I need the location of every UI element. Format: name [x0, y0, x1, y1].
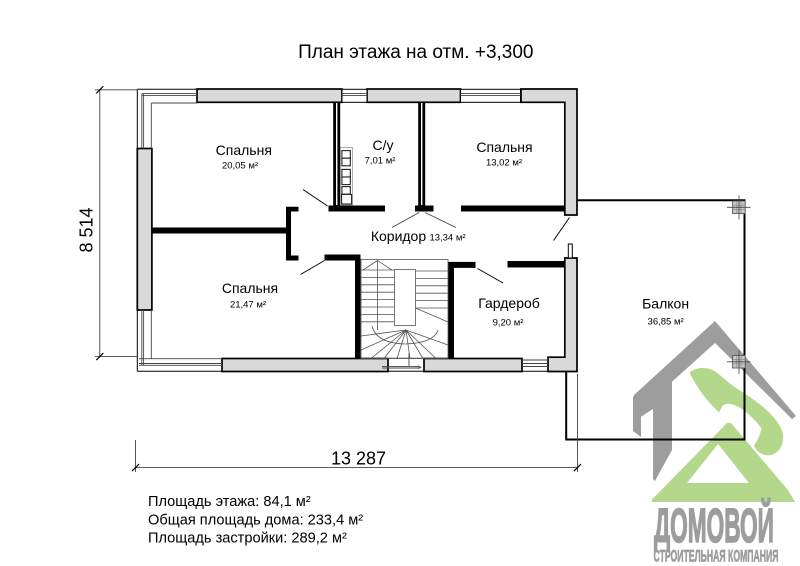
svg-text:Спальня: Спальня — [222, 280, 278, 296]
svg-text:Площадь застройки: 289,2 м²: Площадь застройки: 289,2 м² — [148, 531, 347, 547]
svg-text:Общая площадь дома: 233,4 м²: Общая площадь дома: 233,4 м² — [148, 513, 363, 529]
svg-text:Балкон: Балкон — [642, 296, 689, 312]
svg-text:9,20 м²: 9,20 м² — [493, 318, 524, 329]
svg-text:Спальня: Спальня — [476, 139, 532, 155]
svg-text:21,47 м²: 21,47 м² — [230, 300, 266, 311]
svg-text:ДОМОВОЙ: ДОМОВОЙ — [654, 499, 774, 553]
svg-text:Гардероб: Гардероб — [478, 295, 540, 311]
svg-text:Площадь этажа: 84,1 м²: Площадь этажа: 84,1 м² — [148, 494, 311, 510]
svg-text:Спальня: Спальня — [216, 142, 272, 158]
svg-text:36,85 м²: 36,85 м² — [648, 316, 684, 327]
svg-text:8 514: 8 514 — [77, 207, 97, 252]
svg-text:СТРОИТЕЛЬНАЯ КОМПАНИЯ: СТРОИТЕЛЬНАЯ КОМПАНИЯ — [654, 546, 779, 565]
svg-text:С/у: С/у — [373, 137, 394, 153]
svg-text:Коридор: Коридор — [371, 228, 427, 244]
svg-text:20,05 м²: 20,05 м² — [222, 161, 258, 172]
svg-text:13,02 м²: 13,02 м² — [486, 158, 522, 169]
svg-text:13,34 м²: 13,34 м² — [429, 233, 465, 244]
svg-text:7,01 м²: 7,01 м² — [365, 156, 396, 167]
svg-text:13 287: 13 287 — [331, 449, 386, 469]
svg-text:План этажа на отм. +3,300: План этажа на отм. +3,300 — [298, 42, 533, 63]
